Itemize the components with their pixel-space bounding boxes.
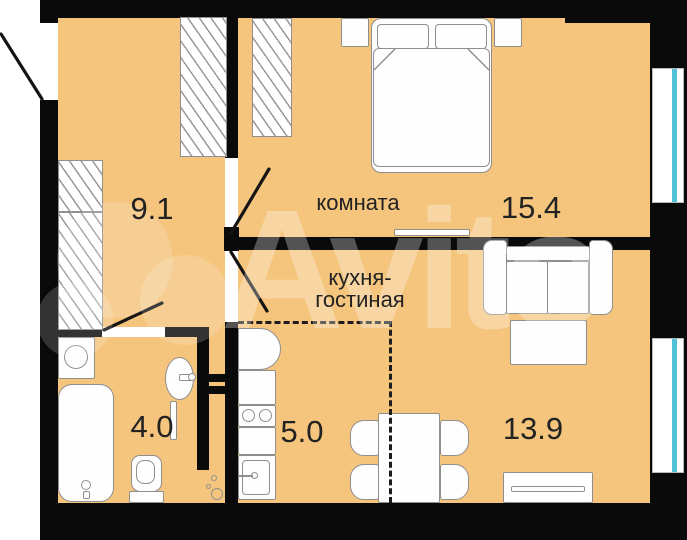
kitchen-counter-upper <box>238 370 276 405</box>
blanket <box>373 48 490 167</box>
stove-burner-right <box>259 409 272 422</box>
floor-drain-bubble-1 <box>211 475 217 481</box>
wardrobe-hallway-left-lower <box>58 212 103 330</box>
sofa-back <box>506 246 590 261</box>
area-label-hallway: 9.1 <box>130 191 173 227</box>
kitchen-zone-divider-horizontal <box>238 321 390 324</box>
toilet-bowl <box>131 455 162 492</box>
chair-top-left <box>350 420 379 456</box>
washing-machine-drum <box>64 345 88 369</box>
pillow-right <box>435 24 487 49</box>
chair-top-right <box>440 420 469 456</box>
area-label-bedroom: 15.4 <box>501 190 561 226</box>
stove-burner-left <box>242 409 255 422</box>
sofa-armrest-left <box>483 240 507 315</box>
window-living-glass <box>672 339 677 472</box>
toilet-bowl-inner <box>136 460 155 484</box>
sofa-armrest-right <box>589 240 613 315</box>
wall-shaft-left <box>197 335 209 470</box>
kitchen-sink-unit <box>238 455 276 500</box>
room-label-bedroom: комната <box>316 192 399 214</box>
wall-bottom <box>40 503 687 540</box>
area-label-living: 13.9 <box>503 411 563 447</box>
bathtub-faucet <box>83 491 90 499</box>
nightstand-left <box>341 18 369 47</box>
coffee-table <box>510 320 587 365</box>
vent-shaft-bar-1 <box>209 374 225 382</box>
kitchen-counter-lower <box>238 427 276 455</box>
bathroom-faucet-knob <box>188 373 196 381</box>
area-label-kitchen: 5.0 <box>280 414 323 450</box>
kitchen-faucet <box>239 475 253 477</box>
window-bedroom <box>652 68 684 203</box>
area-label-bathroom: 4.0 <box>130 409 173 445</box>
entrance-door-swing <box>1 34 42 99</box>
kitchen-door-opening <box>225 251 238 322</box>
bathtub-drain <box>81 480 91 490</box>
wall-hall-kitchen <box>225 322 238 504</box>
washing-machine <box>58 337 95 379</box>
dining-table <box>378 413 440 503</box>
bathtub <box>58 384 114 502</box>
wall-entrance-cap <box>40 0 58 23</box>
bedroom-door-opening <box>225 158 238 228</box>
vent-shaft-bar-2 <box>209 386 225 394</box>
nightstand-right <box>494 18 522 47</box>
sofa-cushion-left <box>506 261 548 314</box>
wardrobe-bedroom <box>252 18 292 137</box>
wardrobe-hallway-top <box>180 17 227 157</box>
window-bedroom-glass <box>672 69 677 202</box>
wardrobe-hallway-left-upper <box>58 160 103 212</box>
tv-console-inner <box>511 486 585 492</box>
entrance-opening <box>40 23 58 100</box>
floor-drain-bubble-2 <box>206 484 211 489</box>
chair-bottom-left <box>350 464 379 500</box>
chair-bottom-right <box>440 464 469 500</box>
pillow-left <box>377 24 429 49</box>
room-label-kitchen-living: кухня- гостиная <box>315 267 404 311</box>
toilet-tank <box>129 491 164 503</box>
floor-plan: Avito 9.1 комната 15.4 кухня- гостиная 4… <box>0 0 687 540</box>
wall-left <box>40 100 58 503</box>
fridge <box>238 328 281 370</box>
floor-drain-bubble-3 <box>211 488 223 500</box>
bedroom-wall-threshold <box>394 229 470 236</box>
sofa-cushion-right <box>547 261 589 314</box>
stove <box>238 405 276 427</box>
kitchen-zone-divider-vertical <box>389 321 392 503</box>
bathroom-door-opening <box>102 327 165 337</box>
room-label-kitchen-line2: гостиная <box>315 287 404 312</box>
window-living <box>652 338 684 473</box>
